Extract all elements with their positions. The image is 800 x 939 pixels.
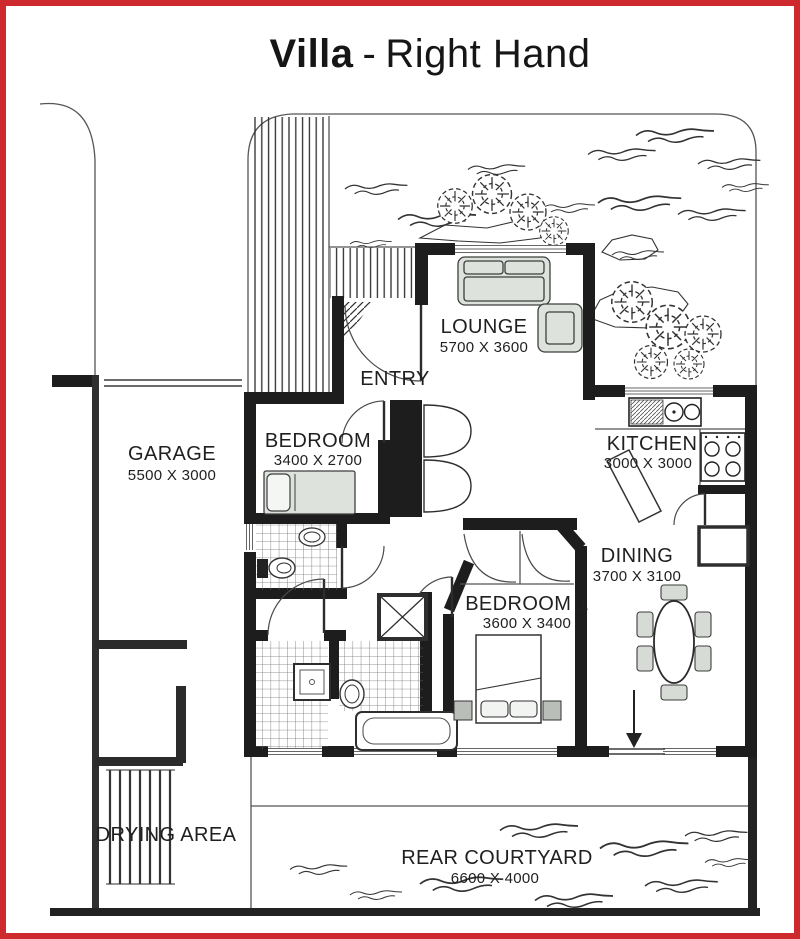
store-wall [176, 686, 186, 763]
dining-label: DINING [601, 545, 673, 567]
store-wall [95, 757, 183, 766]
pillow [481, 701, 508, 717]
garage-label: GARAGE [128, 443, 216, 465]
kitchen: KITCHEN 3000 X 3000 [595, 398, 745, 522]
window-icon [455, 246, 566, 253]
floor-plan-drawing: Villa-Right Hand [0, 0, 800, 939]
double-bed-icon [476, 635, 541, 723]
basin-icon [340, 680, 364, 708]
cooktop-icon [701, 433, 745, 481]
rear-courtyard-dims: 6600 X 4000 [451, 870, 539, 887]
courtyard-wall [748, 757, 757, 910]
deck-stripes [250, 117, 328, 392]
entry-label: ENTRY [360, 368, 429, 390]
sliding-door-icon [609, 749, 665, 754]
shrub-icon [685, 316, 721, 352]
shrub-icon [646, 305, 690, 349]
window-icon [625, 388, 713, 394]
bathtub-icon [356, 712, 457, 750]
sink-icon [629, 398, 701, 426]
shrub-icon [473, 175, 512, 214]
garage-dims: 5500 X 3000 [128, 467, 216, 484]
page-title: Villa-Right Hand [270, 32, 591, 76]
chair-icon [637, 646, 653, 671]
shrub-icon [674, 349, 704, 379]
dining: DINING 3700 X 3100 [593, 545, 711, 700]
toilet-icon [257, 558, 295, 578]
robe-doors-icon [424, 405, 471, 512]
bedroom1-label: BEDROOM 1 [465, 593, 589, 615]
floor-plan-page: Villa-Right Hand [0, 0, 800, 939]
lounge-label: LOUNGE [441, 316, 528, 338]
pillow [510, 701, 537, 717]
wc [256, 524, 337, 590]
shrub-icon [612, 282, 653, 323]
chair-icon [695, 612, 711, 637]
basin-icon [299, 528, 325, 546]
bedroom-dims: 3400 X 2700 [274, 452, 362, 469]
dining-table-icon [654, 601, 694, 683]
dining-dims: 3700 X 3100 [593, 568, 681, 585]
shrub-icon [438, 189, 473, 224]
kitchen-door-icon [674, 494, 705, 525]
driveway-boundary [40, 103, 95, 375]
chair-icon [661, 585, 687, 600]
rock-icon [602, 235, 658, 260]
porch-stripes [330, 248, 415, 298]
garage-wall [52, 375, 98, 387]
drying-area-label: DRYING AREA [96, 824, 237, 846]
lounge-dims: 5700 X 3600 [440, 339, 528, 356]
title-product: Villa [270, 32, 354, 76]
window-icon [247, 522, 253, 550]
chair-icon [695, 646, 711, 671]
title-separator: - [363, 32, 377, 76]
linen-cupboard-icon [379, 595, 426, 639]
pillow [267, 474, 290, 511]
garage-rear-wall [95, 640, 187, 649]
armchair-icon [538, 304, 582, 352]
bedside-table-icon [454, 701, 472, 720]
bedroom1: BEDROOM 1 3600 X 3400 [454, 531, 589, 723]
hall-robe [390, 400, 422, 517]
wc-door-icon [342, 546, 384, 588]
title-variant: Right Hand [385, 32, 590, 76]
shrub-icon [510, 194, 546, 230]
bedside-table-icon [543, 701, 561, 720]
shrub-icon [540, 217, 569, 246]
shower-icon [294, 664, 330, 700]
lounge: LOUNGE 5700 X 3600 [440, 257, 582, 356]
drying-area: DRYING AREA [96, 770, 237, 884]
chair-icon [637, 612, 653, 637]
rear-courtyard-label: REAR COURTYARD [401, 847, 593, 869]
kitchen-dims: 3000 X 3000 [604, 455, 692, 472]
shrub-icon [635, 346, 668, 379]
rear-boundary-wall [50, 908, 760, 916]
bedroom-label: BEDROOM [265, 430, 371, 452]
bedroom1-dims: 3600 X 3400 [483, 615, 571, 632]
single-bed-icon [264, 471, 355, 514]
kitchen-label: KITCHEN [607, 433, 698, 455]
wardrobe-icon [460, 531, 574, 584]
sofa-icon [458, 257, 550, 305]
down-arrow-icon [626, 690, 642, 748]
chair-icon [661, 685, 687, 700]
bedroom: BEDROOM 3400 X 2700 [264, 430, 371, 514]
pantry-cupboard-icon [699, 527, 748, 565]
